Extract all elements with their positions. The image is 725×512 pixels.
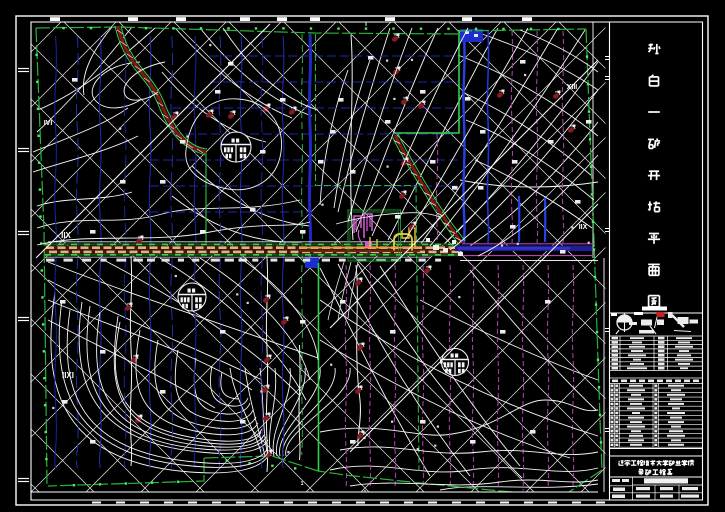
svg-text:IVI: IVI — [44, 120, 53, 127]
svg-text:IIX: IIX — [61, 231, 71, 240]
svg-text:1: 1 — [301, 481, 304, 487]
svg-text:IIX: IIX — [579, 224, 588, 231]
